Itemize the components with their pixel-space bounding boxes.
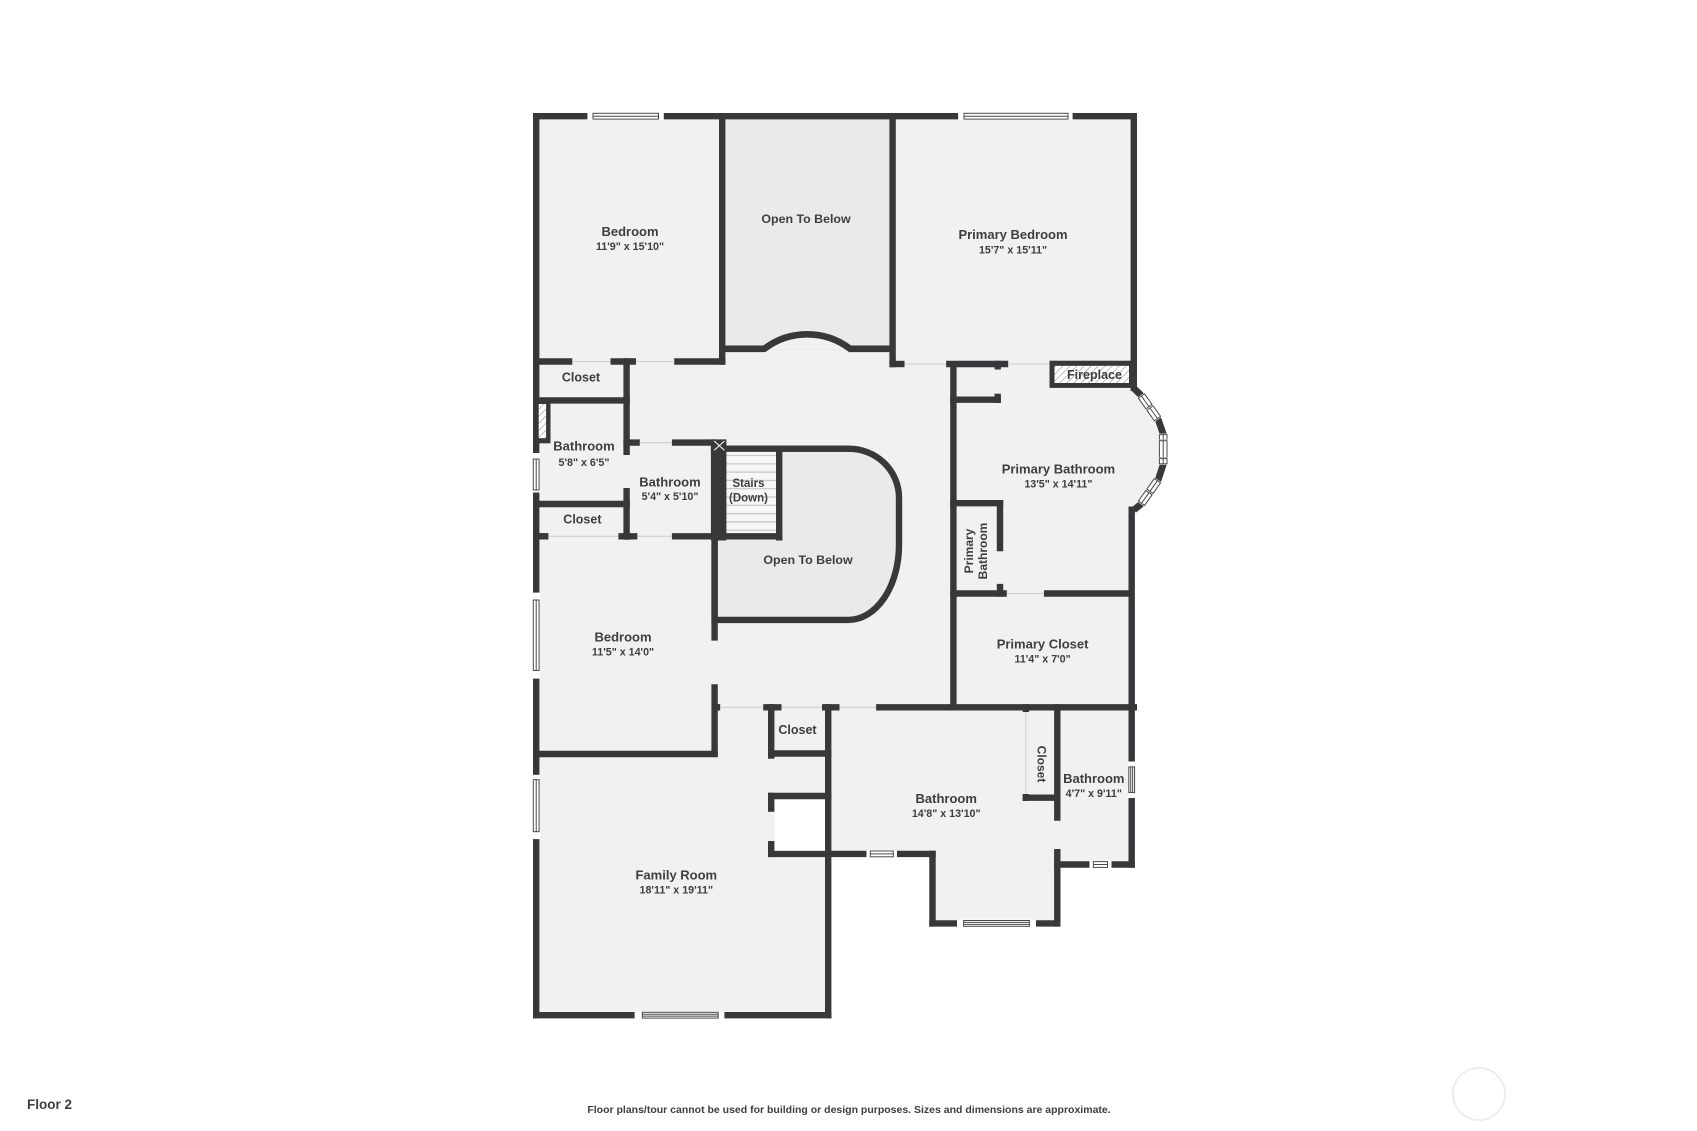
svg-text:Primary Closet: Primary Closet: [997, 636, 1089, 651]
svg-text:18'11" x 19'11": 18'11" x 19'11": [640, 885, 713, 897]
svg-text:11'4" x 7'0": 11'4" x 7'0": [1014, 654, 1070, 666]
svg-text:4'7" x 9'11": 4'7" x 9'11": [1066, 788, 1122, 800]
svg-text:Closet: Closet: [563, 512, 602, 526]
svg-text:13'5" x 14'11": 13'5" x 14'11": [1024, 479, 1092, 491]
svg-text:Closet: Closet: [778, 723, 817, 737]
svg-text:5'4" x 5'10": 5'4" x 5'10": [642, 491, 699, 503]
svg-text:Stairs: Stairs: [733, 478, 765, 490]
svg-text:Floor 2: Floor 2: [27, 1097, 72, 1112]
svg-text:Open To Below: Open To Below: [761, 212, 851, 226]
svg-text:Primary: Primary: [962, 528, 976, 573]
svg-text:Bathroom: Bathroom: [639, 474, 700, 489]
svg-text:14'8" x 13'10": 14'8" x 13'10": [912, 808, 981, 820]
svg-text:Open To Below: Open To Below: [763, 553, 853, 567]
svg-text:(Down): (Down): [729, 493, 768, 505]
svg-text:Bathroom: Bathroom: [1063, 771, 1124, 786]
svg-text:Bathroom: Bathroom: [976, 523, 990, 580]
svg-text:Family Room: Family Room: [635, 868, 717, 883]
svg-text:Closet: Closet: [1035, 746, 1049, 783]
svg-text:Bathroom: Bathroom: [916, 791, 977, 806]
svg-text:5'8" x 6'5": 5'8" x 6'5": [559, 457, 610, 469]
svg-text:15'7" x 15'11": 15'7" x 15'11": [979, 245, 1047, 257]
svg-text:11'5" x 14'0": 11'5" x 14'0": [592, 647, 654, 659]
svg-text:Bedroom: Bedroom: [594, 630, 651, 645]
svg-text:Closet: Closet: [562, 371, 601, 385]
svg-text:Fireplace: Fireplace: [1067, 368, 1122, 382]
svg-text:Bathroom: Bathroom: [553, 439, 614, 454]
svg-text:Floor plans/tour cannot be use: Floor plans/tour cannot be used for buil…: [587, 1104, 1110, 1116]
svg-text:Primary Bathroom: Primary Bathroom: [1002, 462, 1115, 477]
svg-text:Primary Bedroom: Primary Bedroom: [958, 227, 1067, 242]
svg-text:Bedroom: Bedroom: [601, 224, 658, 239]
svg-text:11'9" x 15'10": 11'9" x 15'10": [596, 241, 664, 253]
